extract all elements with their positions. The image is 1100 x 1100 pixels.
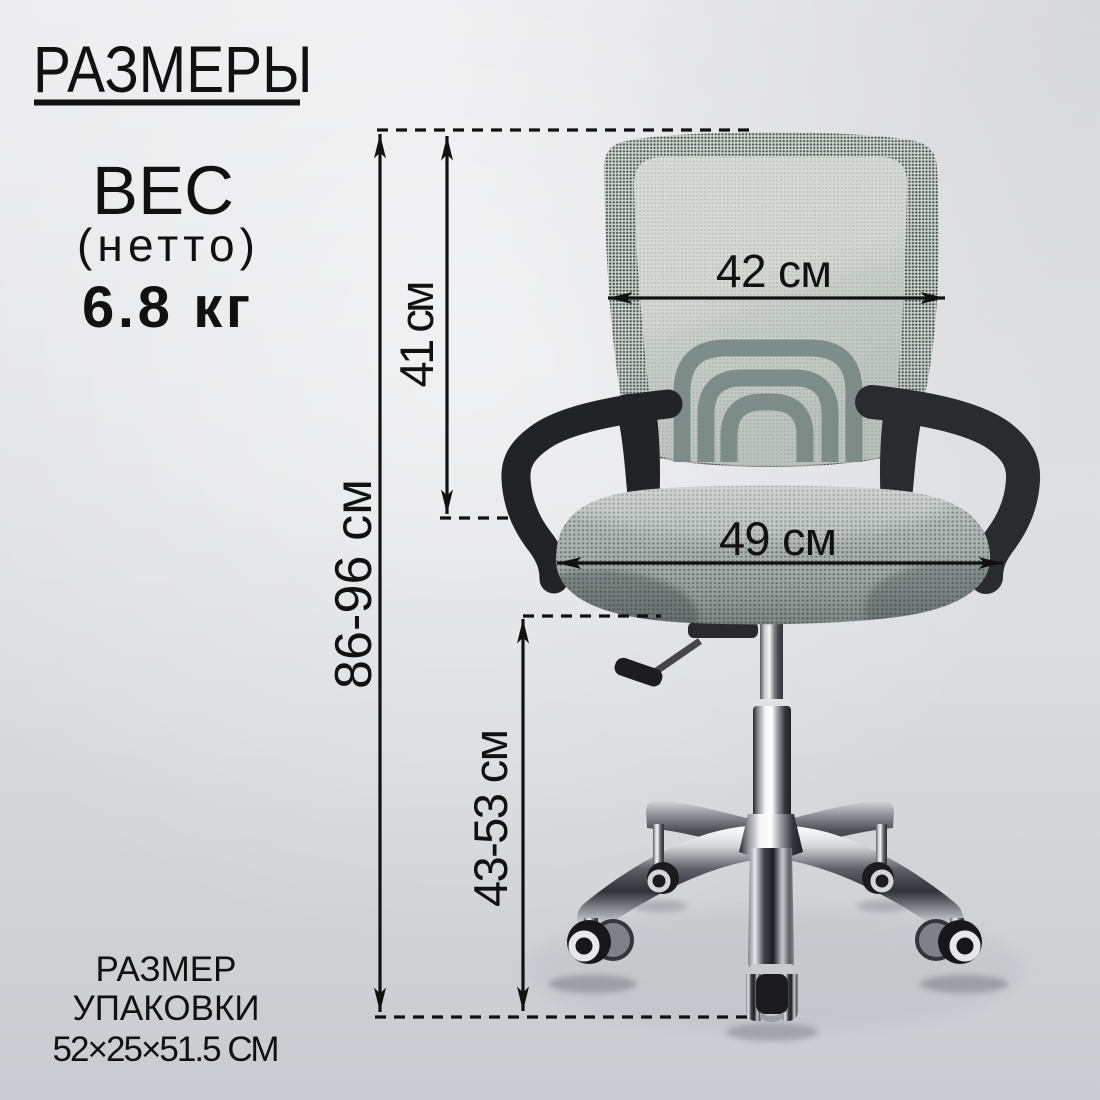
svg-text:43-53 см: 43-53 см	[464, 729, 517, 907]
svg-text:41 см: 41 см	[390, 281, 443, 388]
svg-text:УПАКОВКИ: УПАКОВКИ	[73, 989, 260, 1028]
svg-text:42 см: 42 см	[716, 245, 832, 297]
svg-text:(нетто): (нетто)	[77, 219, 255, 271]
svg-text:86-96 см: 86-96 см	[325, 479, 383, 689]
svg-text:ВЕС: ВЕС	[92, 152, 234, 229]
svg-text:РАЗМЕРЫ: РАЗМЕРЫ	[33, 33, 312, 107]
svg-text:РАЗМЕР: РАЗМЕР	[96, 950, 237, 989]
svg-text:52×25×51.5 СМ: 52×25×51.5 СМ	[53, 1030, 280, 1069]
svg-text:49 см: 49 см	[719, 512, 837, 565]
